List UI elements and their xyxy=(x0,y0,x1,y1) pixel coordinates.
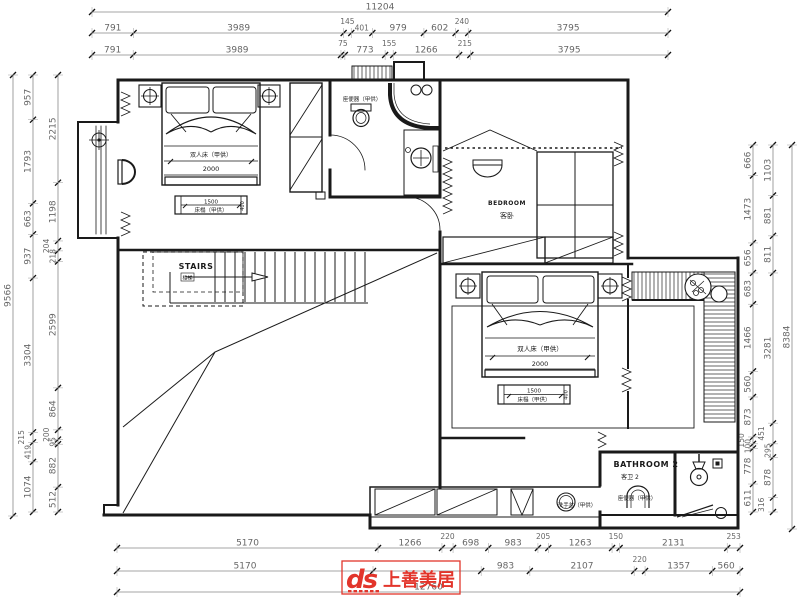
nightstand-2-right xyxy=(598,274,622,298)
toilet1-label: 座便器（甲供） xyxy=(343,95,382,103)
dim-label: 150 xyxy=(609,532,624,541)
bed2-label: 双人床（甲供） xyxy=(517,344,563,353)
dim-label: 218 xyxy=(49,249,58,264)
dim-label: 1266 xyxy=(415,46,438,56)
dim-label: 155 xyxy=(382,39,397,48)
dim-label: 683 xyxy=(744,280,754,297)
bottom-closets xyxy=(375,489,575,515)
dim-label: 778 xyxy=(744,457,754,474)
dim-label: 791 xyxy=(104,24,121,34)
dim-label: 240 xyxy=(455,17,470,26)
dim-label: 698 xyxy=(462,539,479,549)
dim-label: 401 xyxy=(355,24,370,33)
dim-label: 1074 xyxy=(24,475,34,498)
dim-label: 9566 xyxy=(4,284,14,307)
bench2-length: 1500 xyxy=(527,389,541,395)
floor-plan-svg: 11204 79139891454019796022403795 7913989… xyxy=(0,0,800,600)
dim-right-total: 8384 xyxy=(783,142,798,532)
dim-top-row1: 79139891454019796022403795 xyxy=(89,17,671,38)
dim-label: 2599 xyxy=(49,313,59,336)
dim-label: 512 xyxy=(49,491,59,508)
nightstand-2-left xyxy=(456,274,480,298)
bathroom2-label-en: BATHROOM 2 xyxy=(614,460,679,469)
dim-label: 873 xyxy=(744,408,754,425)
dim-label: 979 xyxy=(390,24,407,34)
bench2-depth: 400 xyxy=(564,390,570,400)
guest-bedroom-label-en: BEDROOM xyxy=(488,200,526,207)
nightstand-1-right xyxy=(258,85,280,107)
bench1-length: 1500 xyxy=(204,200,218,206)
bed1-label: 双人床（甲供） xyxy=(190,151,232,159)
bed2-width: 2000 xyxy=(532,360,549,368)
dim-label: 1473 xyxy=(744,198,754,221)
bench2-label: 床榻（甲供） xyxy=(517,396,550,404)
dim-left-chain-b: 22151198204218259986420095882512 xyxy=(42,72,63,515)
dim-label: 957 xyxy=(24,89,34,106)
dim-right-chain-c: 66614736566831466560873150100778611 xyxy=(737,142,758,515)
dim-label: 791 xyxy=(104,46,121,56)
dim-label: 864 xyxy=(49,400,59,417)
dim-label: 663 xyxy=(24,210,34,227)
dim-top-row2: 79139897577315512662153795 xyxy=(89,39,671,60)
dim-label: 611 xyxy=(744,489,754,506)
toilet2-label: 座便器（甲供） xyxy=(618,494,657,502)
dim-label: 1266 xyxy=(399,539,422,549)
dim-label: 882 xyxy=(49,457,59,474)
stairs-label-en: STAIRS xyxy=(179,262,214,271)
dim-label: 1466 xyxy=(744,326,754,349)
brand-stamp: ds 上善美居 xyxy=(342,561,460,595)
dim-label: 3989 xyxy=(226,46,249,56)
floor-plan-sheet: 11204 79139891454019796022403795 7913989… xyxy=(0,0,800,600)
dim-label: 451 xyxy=(757,426,766,441)
bench1-depth: 400 xyxy=(240,201,246,211)
dim-left-total: 9566 xyxy=(4,72,19,519)
bench1-label: 床榻（甲供） xyxy=(194,206,227,214)
dim-label: 220 xyxy=(440,532,455,541)
dim-label: 3795 xyxy=(558,46,581,56)
dim-label: 220 xyxy=(632,555,647,564)
dim-bottom-row1: 5170126622069898320512631502131253 xyxy=(114,532,743,553)
dim-label: 295 xyxy=(764,443,773,458)
dim-label: 100 xyxy=(744,439,753,454)
dim-label: 3795 xyxy=(557,24,580,34)
wardrobe-1 xyxy=(290,83,325,199)
dim-right-chain-d: 11038818113281451295878316 xyxy=(757,142,778,515)
basin-label: 洗手盆（甲供） xyxy=(558,501,597,509)
dim-label: 3304 xyxy=(24,343,34,366)
dim-label: 5170 xyxy=(236,539,259,549)
dim-label: 878 xyxy=(764,469,774,486)
dim-label: 215 xyxy=(458,39,473,48)
dim-top-total: 11204 xyxy=(89,3,671,18)
dim-label: 419 xyxy=(24,445,33,460)
dim-label: 602 xyxy=(431,24,448,34)
dim-label: 215 xyxy=(17,430,26,445)
dim-label: 2131 xyxy=(662,539,685,549)
dim-label: 811 xyxy=(764,246,774,263)
dim-label: 2107 xyxy=(571,562,594,572)
stairs xyxy=(143,252,368,306)
dim-label: 3281 xyxy=(764,337,774,360)
dim-label: 560 xyxy=(718,562,735,572)
dim-label: 937 xyxy=(24,248,34,265)
dim-label: 8384 xyxy=(783,325,793,348)
dim-label: 2215 xyxy=(49,117,59,140)
bathroom2-label-cn: 客卫 2 xyxy=(621,473,639,481)
dim-label: 145 xyxy=(340,17,355,26)
dim-label: 983 xyxy=(497,562,514,572)
dim-label: 253 xyxy=(726,532,741,541)
dim-label: 560 xyxy=(744,375,754,392)
dim-label: 205 xyxy=(536,532,551,541)
dim-label: 1793 xyxy=(24,150,34,173)
dim-label: 1263 xyxy=(569,539,592,549)
dim-label: 983 xyxy=(505,539,522,549)
brand-name: 上善美居 xyxy=(383,569,455,591)
guest-bedroom xyxy=(443,130,622,263)
dim-label: 773 xyxy=(356,46,373,56)
stairs-label-cn: 楼梯 xyxy=(182,275,192,282)
bed1-width: 2000 xyxy=(203,165,220,173)
dim-label: 666 xyxy=(744,151,754,168)
dim-label: 316 xyxy=(757,497,766,512)
guest-bedroom-label-cn: 客卧 xyxy=(500,211,514,220)
dim-label: 11204 xyxy=(366,3,395,13)
dim-label: 3989 xyxy=(227,24,250,34)
dim-label: 1198 xyxy=(49,200,59,223)
dim-label: 95 xyxy=(49,437,58,447)
dim-label: 656 xyxy=(744,249,754,266)
dim-left-chain-a: 957179366393733042154191074 xyxy=(17,72,38,515)
dim-label: 1103 xyxy=(764,159,774,182)
top-wall-window xyxy=(352,62,424,80)
nightstand-1-left xyxy=(139,85,161,107)
dim-label: 5170 xyxy=(234,562,257,572)
dim-label: 75 xyxy=(338,39,348,48)
dim-label: 881 xyxy=(764,207,774,224)
dim-label: 1357 xyxy=(667,562,690,572)
